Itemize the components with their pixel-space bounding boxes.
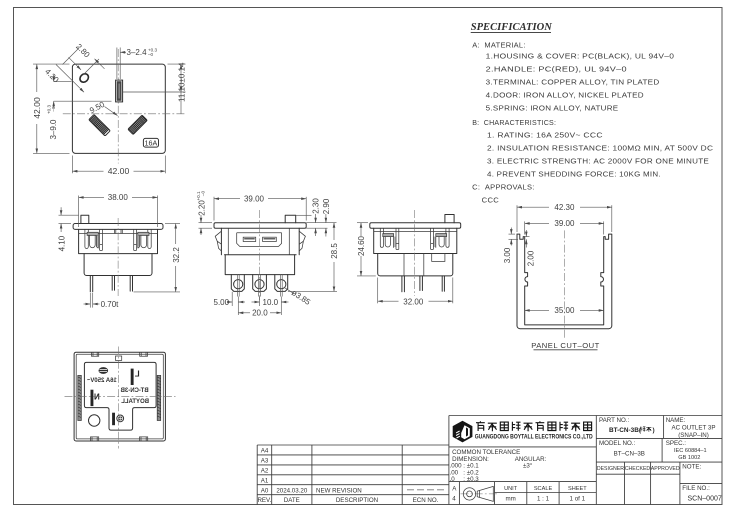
svg-text:DESIGNER: DESIGNER <box>597 466 624 472</box>
svg-text:1 of 1: 1 of 1 <box>570 495 586 502</box>
svg-text:2024.03.20: 2024.03.20 <box>276 487 308 494</box>
svg-text:3–9.0: 3–9.0 <box>49 119 58 140</box>
svg-text:SCALE: SCALE <box>534 486 553 492</box>
svg-text:SPECIFICATION: SPECIFICATION <box>471 22 553 33</box>
svg-text:42.00: 42.00 <box>32 97 42 119</box>
svg-text:PART NO.:: PART NO.: <box>599 417 630 424</box>
svg-text:NOTE:: NOTE: <box>682 463 701 470</box>
svg-text:3.TERMINAL: COPPER ALLOY, TIN: 3.TERMINAL: COPPER ALLOY, TIN PLATED <box>486 77 660 86</box>
svg-text:1. RATING: 16A 250V~ CCC: 1. RATING: 16A 250V~ CCC <box>487 131 603 140</box>
svg-text:MODEL NO.:: MODEL NO.: <box>599 440 635 447</box>
svg-text:5.00: 5.00 <box>214 298 230 307</box>
svg-text:UNIT: UNIT <box>504 486 518 492</box>
svg-text:35.00: 35.00 <box>554 306 575 315</box>
svg-text:4.10: 4.10 <box>57 235 66 251</box>
svg-text:2.00: 2.00 <box>526 250 535 266</box>
svg-text:4.DOOR: IRON ALLOY, NICKEL PLA: 4.DOOR: IRON ALLOY, NICKEL PLATED <box>486 90 645 99</box>
svg-text:SPEC.:: SPEC.: <box>666 440 687 447</box>
svg-text:28.5: 28.5 <box>330 243 339 259</box>
svg-text:B: CHARACTERISTICS:: B: CHARACTERISTICS: <box>472 118 556 127</box>
svg-text:16A: 16A <box>145 138 158 147</box>
svg-text:FILE NO.:: FILE NO.: <box>682 485 710 492</box>
svg-text:39.00: 39.00 <box>554 219 575 228</box>
svg-text:): ) <box>653 427 655 434</box>
svg-text:39.00: 39.00 <box>244 195 265 204</box>
svg-text:COMMON TOLERANCE: COMMON TOLERANCE <box>452 449 520 456</box>
svg-text:L: L <box>135 370 140 379</box>
svg-text:PANEL CUT–OUT: PANEL CUT–OUT <box>531 341 600 350</box>
svg-text:–0: –0 <box>148 52 154 57</box>
svg-text:2.20: 2.20 <box>198 200 207 216</box>
svg-text:A1: A1 <box>261 477 269 484</box>
svg-text:32.2: 32.2 <box>172 247 181 263</box>
svg-text:C: APPROVALS:: C: APPROVALS: <box>472 183 534 192</box>
svg-text:0.70t: 0.70t <box>101 300 120 309</box>
svg-text:A3: A3 <box>261 458 269 465</box>
svg-text:24.60: 24.60 <box>357 235 366 256</box>
svg-text:42.30: 42.30 <box>554 203 575 212</box>
svg-text:A2: A2 <box>261 468 269 475</box>
svg-text:GB 1002: GB 1002 <box>678 455 700 461</box>
svg-text:BT-CN-3B: BT-CN-3B <box>120 388 149 394</box>
svg-text:BOYTALL: BOYTALL <box>121 399 149 405</box>
svg-text:A4: A4 <box>261 448 269 455</box>
svg-text:32.00: 32.00 <box>403 298 424 307</box>
svg-text:.0 : ±0.3: .0 : ±0.3 <box>450 476 480 483</box>
svg-text:mm: mm <box>505 495 515 502</box>
svg-text:2. INSULATION RESISTANCE: 100M: 2. INSULATION RESISTANCE: 100MΩ MIN, AT … <box>487 144 714 153</box>
svg-text:–0: –0 <box>51 106 56 112</box>
svg-text:3–2.4: 3–2.4 <box>127 48 148 57</box>
svg-text:38.00: 38.00 <box>108 193 129 202</box>
svg-text:1.HOUSING & COVER: PC(BLACK),: 1.HOUSING & COVER: PC(BLACK), UL 94V–0 <box>486 52 675 61</box>
svg-text:±3°: ±3° <box>523 462 533 469</box>
svg-text:A0: A0 <box>261 487 269 494</box>
svg-text:42.00: 42.00 <box>108 166 130 176</box>
svg-text:5.SPRING: IRON ALLOY, NATURE: 5.SPRING: IRON ALLOY, NATURE <box>486 103 619 112</box>
svg-text:2.HANDLE: PC(RED), UL 94V–0: 2.HANDLE: PC(RED), UL 94V–0 <box>486 65 627 74</box>
svg-text:CCC: CCC <box>482 196 500 205</box>
svg-text:A: MATERIAL:: A: MATERIAL: <box>472 40 526 49</box>
svg-text:3. ELECTRIC STRENGTH: AC 2000V: 3. ELECTRIC STRENGTH: AC 2000V FOR ONE M… <box>487 157 709 166</box>
svg-text:16A 250V~: 16A 250V~ <box>86 378 116 384</box>
svg-text:DESCRIPTION: DESCRIPTION <box>336 497 378 504</box>
svg-text:APPROVED: APPROVED <box>651 466 680 472</box>
svg-text:BT-CN-3B(: BT-CN-3B( <box>609 427 642 434</box>
svg-text:20.0: 20.0 <box>252 309 268 318</box>
svg-text:AC OUTLET 3P: AC OUTLET 3P <box>672 425 716 432</box>
svg-text:3.00: 3.00 <box>503 247 512 263</box>
svg-text:4. PREVENT SHEDDING FORCE: 10K: 4. PREVENT SHEDDING FORCE: 10KG MIN. <box>487 170 661 179</box>
svg-text:(SNAP–IN): (SNAP–IN) <box>678 432 709 439</box>
svg-text:–0: –0 <box>201 191 206 197</box>
svg-text:CHECKED: CHECKED <box>625 466 651 472</box>
svg-text:4: 4 <box>452 496 456 503</box>
svg-text:ECN NO.: ECN NO. <box>413 497 439 504</box>
svg-text:NAME:: NAME: <box>666 417 686 424</box>
svg-text:IEC 60884–1: IEC 60884–1 <box>674 448 707 454</box>
svg-text:REV.: REV. <box>257 497 271 504</box>
svg-text:NEW REVISION: NEW REVISION <box>316 487 362 494</box>
svg-text:2.90: 2.90 <box>322 198 331 214</box>
svg-text:N: N <box>94 393 100 402</box>
svg-text:GUANGDONG BOYTALL ELECTRONICS: GUANGDONG BOYTALL ELECTRONICS CO.,LTD <box>475 434 593 441</box>
svg-text:1 : 1: 1 : 1 <box>537 495 550 502</box>
svg-text:BT–CN–3B: BT–CN–3B <box>614 451 645 458</box>
svg-text:10.0: 10.0 <box>263 298 279 307</box>
svg-text:DATE: DATE <box>284 497 300 504</box>
svg-text:2.30: 2.30 <box>312 198 321 214</box>
svg-text:SCN–0007: SCN–0007 <box>688 496 722 503</box>
svg-text:11.10±0.14: 11.10±0.14 <box>177 62 186 102</box>
svg-text:SHEET: SHEET <box>568 486 587 492</box>
